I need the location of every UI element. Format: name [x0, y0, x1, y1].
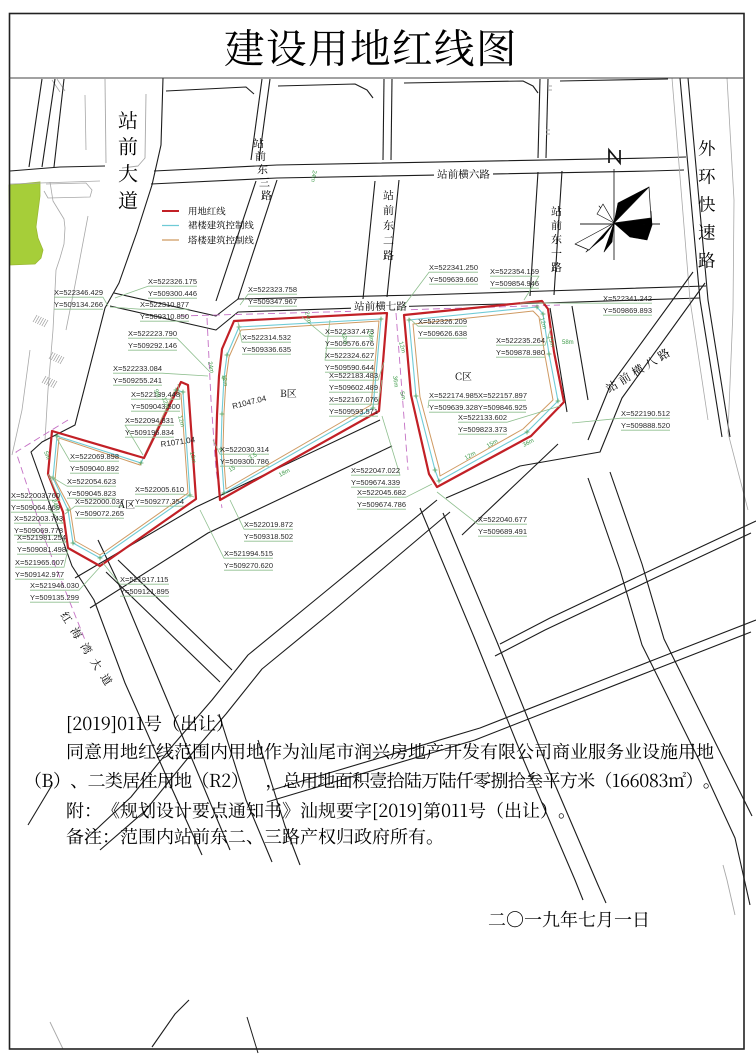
svg-text:Y=509626.638: Y=509626.638 [418, 329, 467, 338]
svg-text:Y=509121.895: Y=509121.895 [120, 587, 169, 596]
svg-text:X=522047.022: X=522047.022 [351, 466, 400, 475]
svg-text:X=522133.602: X=522133.602 [458, 413, 507, 422]
svg-text:Y=509072.265: Y=509072.265 [75, 509, 124, 518]
svg-text:X=522233.084: X=522233.084 [113, 364, 162, 373]
svg-text:X=521981.254: X=521981.254 [17, 533, 66, 542]
svg-text:Y=509878.980: Y=509878.980 [496, 348, 545, 357]
svg-text:Y=509602.489: Y=509602.489 [329, 383, 378, 392]
svg-text:X=522324.627: X=522324.627 [325, 351, 374, 360]
svg-text:X=522003.743: X=522003.743 [14, 514, 63, 523]
svg-text:X=521917.115: X=521917.115 [120, 575, 168, 584]
svg-text:Y=509134.266: Y=509134.266 [54, 300, 103, 309]
svg-text:Y=509310.850: Y=509310.850 [140, 312, 189, 321]
svg-text:X=522019.872: X=522019.872 [244, 520, 293, 529]
svg-text:X=522190.512: X=522190.512 [621, 409, 670, 418]
svg-text:Y=509336.635: Y=509336.635 [242, 345, 291, 354]
svg-text:X=522054.623: X=522054.623 [67, 477, 116, 486]
svg-text:X=522223.790: X=522223.790 [128, 329, 177, 338]
svg-text:Y=509277.354: Y=509277.354 [135, 497, 184, 506]
svg-text:Y=509674.786: Y=509674.786 [357, 500, 406, 509]
svg-text:X=522005.610: X=522005.610 [135, 485, 184, 494]
svg-text:X=522069.898: X=522069.898 [70, 452, 119, 461]
svg-text:Y=509888.520: Y=509888.520 [621, 421, 670, 430]
svg-text:X=522174.985X=522157.897: X=522174.985X=522157.897 [429, 391, 527, 400]
svg-text:X=522167.076: X=522167.076 [329, 395, 378, 404]
svg-text:Y=509347.967: Y=509347.967 [248, 297, 297, 306]
svg-text:Y=509255.241: Y=509255.241 [113, 376, 162, 385]
svg-text:Y=509081.498: Y=509081.498 [17, 545, 66, 554]
svg-text:Y=509142.977: Y=509142.977 [15, 570, 64, 579]
svg-text:Y=509270.620: Y=509270.620 [224, 561, 273, 570]
svg-text:Y=509292.146: Y=509292.146 [128, 341, 177, 350]
svg-text:Y=509869.893: Y=509869.893 [603, 306, 652, 315]
svg-text:Y=509196.834: Y=509196.834 [125, 428, 174, 437]
svg-text:Y=509135.299: Y=509135.299 [30, 593, 79, 602]
svg-text:Y=509318.502: Y=509318.502 [244, 532, 293, 541]
svg-text:X=522045.682: X=522045.682 [357, 488, 406, 497]
svg-text:X=522346.429: X=522346.429 [54, 288, 103, 297]
svg-text:X=522310.877: X=522310.877 [140, 300, 189, 309]
svg-text:X=522040.677: X=522040.677 [478, 515, 527, 524]
svg-text:X=522341.250: X=522341.250 [429, 263, 478, 272]
svg-text:X=522314.532: X=522314.532 [242, 333, 291, 342]
svg-text:Y=509854.946: Y=509854.946 [490, 279, 539, 288]
svg-text:X=521946.030: X=521946.030 [30, 581, 79, 590]
svg-text:58m: 58m [562, 340, 574, 346]
svg-text:Y=509593.571: Y=509593.571 [329, 407, 378, 416]
svg-text:X=522341.242: X=522341.242 [603, 294, 652, 303]
svg-text:X=522323.758: X=522323.758 [248, 285, 297, 294]
svg-text:Y=509300.786: Y=509300.786 [220, 457, 269, 466]
svg-text:X=522003.760: X=522003.760 [11, 491, 60, 500]
svg-text:X=522183.483: X=522183.483 [329, 371, 378, 380]
svg-text:X=522326.175: X=522326.175 [148, 277, 197, 286]
svg-text:Y=509823.373: Y=509823.373 [458, 425, 507, 434]
svg-text:X=522354.159: X=522354.159 [490, 267, 539, 276]
svg-text:X=522326.209: X=522326.209 [418, 317, 467, 326]
svg-text:X=521965.007: X=521965.007 [15, 558, 64, 567]
svg-text:X=522000.037: X=522000.037 [75, 497, 124, 506]
svg-text:Y=509639.660: Y=509639.660 [429, 275, 478, 284]
svg-text:Y=509043.500: Y=509043.500 [131, 402, 180, 411]
svg-text:Y=509639.328Y=509846.925: Y=509639.328Y=509846.925 [429, 403, 527, 412]
svg-text:X=522094.831: X=522094.831 [125, 416, 174, 425]
svg-text:Y=509674.339: Y=509674.339 [351, 478, 400, 487]
svg-text:Y=509689.491: Y=509689.491 [478, 527, 527, 536]
svg-text:Y=509576.676: Y=509576.676 [325, 339, 374, 348]
svg-text:X=522235.264: X=522235.264 [496, 336, 545, 345]
svg-text:X=521994.515: X=521994.515 [224, 549, 273, 558]
svg-text:X=522030.314: X=522030.314 [220, 445, 269, 454]
svg-text:Y=509300.446: Y=509300.446 [148, 289, 197, 298]
svg-text:Y=509040.892: Y=509040.892 [70, 464, 119, 473]
